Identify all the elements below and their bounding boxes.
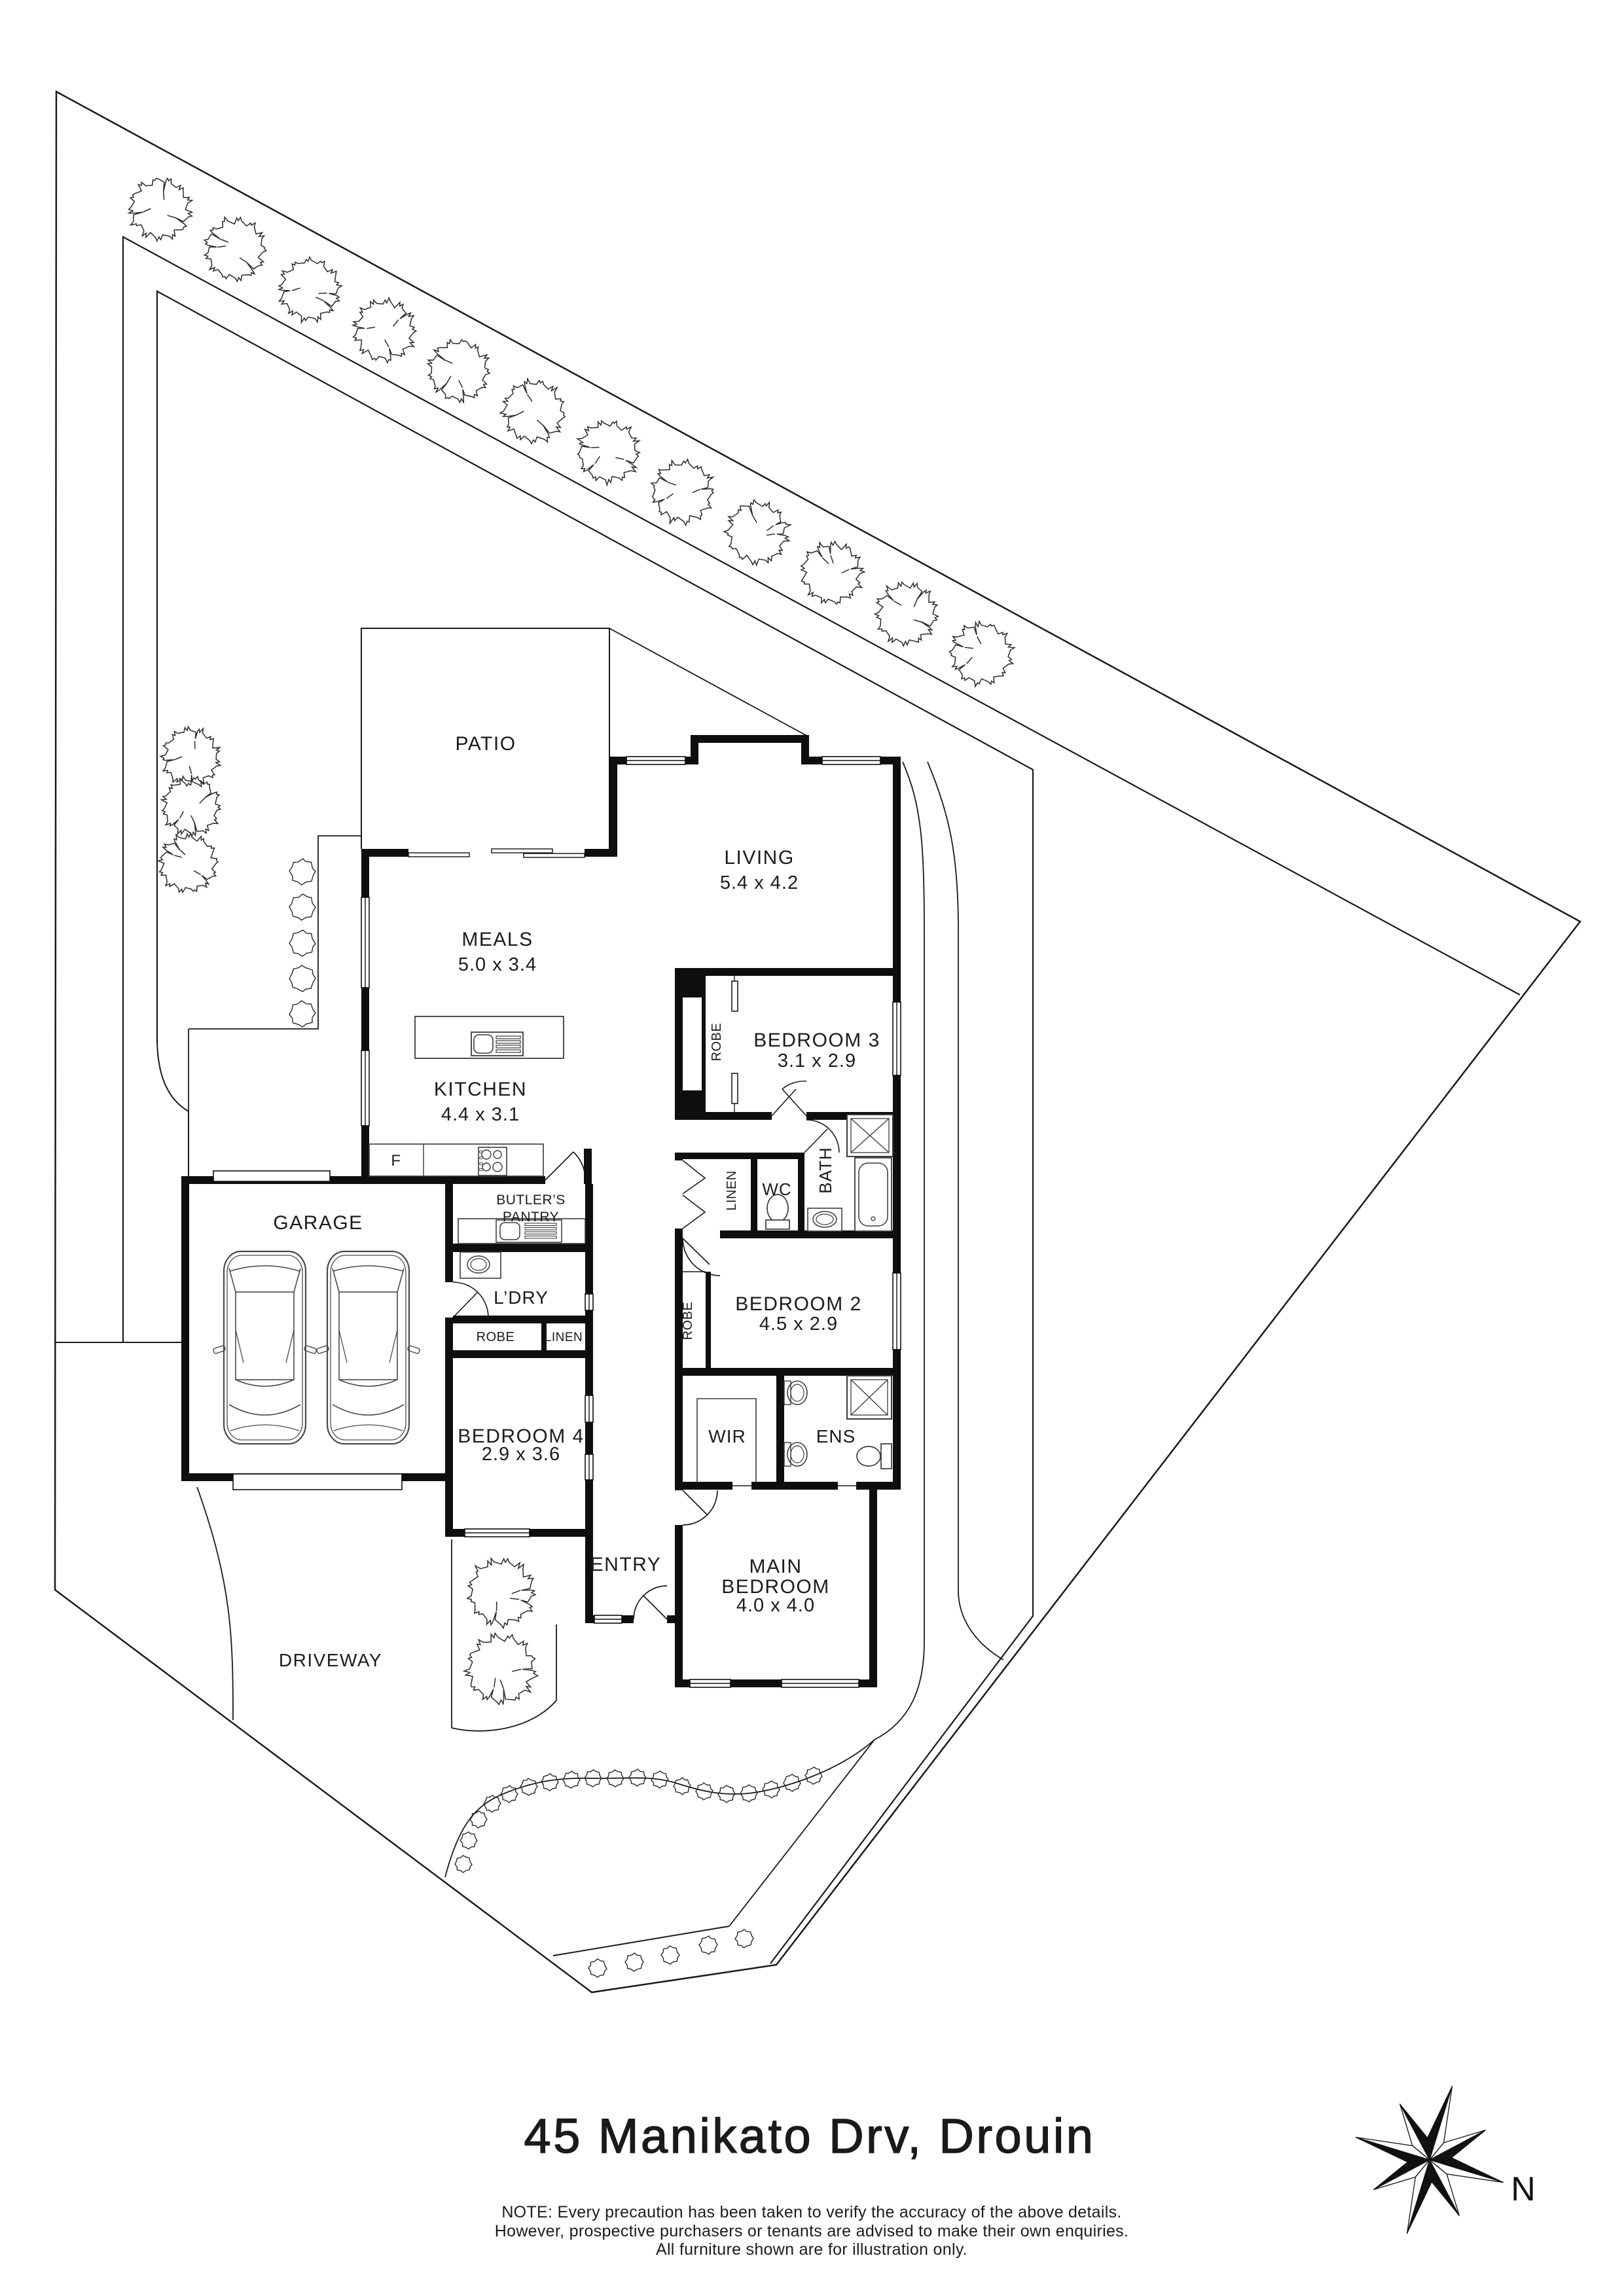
svg-text:PATIO: PATIO — [455, 733, 516, 755]
svg-text:N: N — [1511, 2170, 1536, 2208]
svg-text:4.0 x 4.0: 4.0 x 4.0 — [736, 1595, 815, 1616]
svg-text:MEALS: MEALS — [461, 929, 533, 950]
svg-text:MAIN: MAIN — [749, 1556, 803, 1577]
svg-text:BUTLER’S: BUTLER’S — [496, 1193, 566, 1208]
svg-text:ENS: ENS — [816, 1426, 856, 1446]
svg-text:BEDROOM 2: BEDROOM 2 — [735, 1293, 862, 1315]
svg-text:BATH: BATH — [816, 1147, 835, 1193]
svg-text:However, prospective purchaser: However, prospective purchasers or tenan… — [495, 2222, 1128, 2240]
svg-text:5.0 x 3.4: 5.0 x 3.4 — [458, 954, 537, 975]
svg-text:All furniture shown are for il: All furniture shown are for illustration… — [656, 2240, 967, 2259]
svg-text:5.4 x 4.2: 5.4 x 4.2 — [720, 872, 799, 893]
svg-text:DRIVEWAY: DRIVEWAY — [279, 1650, 382, 1670]
svg-text:KITCHEN: KITCHEN — [434, 1079, 527, 1100]
svg-text:2.9 x 3.6: 2.9 x 3.6 — [482, 1444, 560, 1465]
svg-text:BEDROOM 3: BEDROOM 3 — [753, 1030, 880, 1051]
svg-text:NOTE: Every precaution has bee: NOTE: Every precaution has been taken to… — [501, 2203, 1121, 2221]
svg-text:PANTRY: PANTRY — [503, 1210, 559, 1225]
svg-text:LINEN: LINEN — [725, 1170, 739, 1210]
svg-text:45 Manikato Drv, Drouin: 45 Manikato Drv, Drouin — [524, 2109, 1096, 2163]
svg-text:GARAGE: GARAGE — [273, 1212, 363, 1234]
svg-text:L’DRY: L’DRY — [494, 1287, 549, 1308]
svg-text:WIR: WIR — [708, 1426, 746, 1446]
svg-text:4.5 x 2.9: 4.5 x 2.9 — [759, 1314, 838, 1335]
svg-text:LIVING: LIVING — [724, 847, 794, 869]
svg-text:3.1 x 2.9: 3.1 x 2.9 — [778, 1050, 856, 1071]
svg-text:ROBE: ROBE — [477, 1330, 515, 1344]
svg-text:ROBE: ROBE — [710, 1023, 724, 1062]
svg-text:WC: WC — [762, 1179, 791, 1199]
svg-text:4.4 x 3.1: 4.4 x 3.1 — [441, 1104, 520, 1125]
svg-text:ROBE: ROBE — [681, 1302, 695, 1340]
svg-text:ENTRY: ENTRY — [590, 1554, 662, 1575]
svg-text:LINEN: LINEN — [545, 1331, 583, 1344]
svg-text:F: F — [391, 1152, 401, 1170]
